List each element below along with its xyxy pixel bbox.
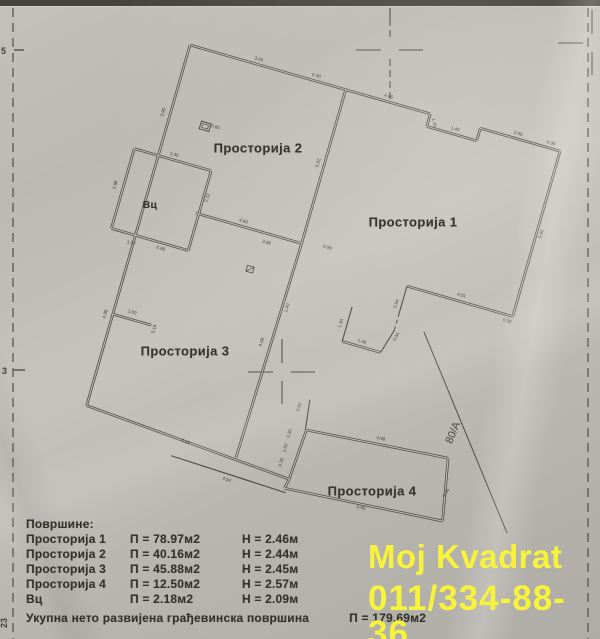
area-legend: Површине: Просторија 1П = 78.97м2Н = 2.4… <box>26 517 426 626</box>
legend-row: Просторија 3П = 45.88м2Н = 2.45м <box>26 562 426 577</box>
watermark: Moj Kvadrat 011/334-88-36 <box>368 540 600 639</box>
dimension-label: 4.65 <box>384 93 394 100</box>
scanned-floor-plan-page: 532380/A3.950.304.651.101.402.950.305.90… <box>0 0 600 639</box>
dimension-label: 0.90 <box>156 245 166 252</box>
legend-col-h: Н = 2.09м <box>242 592 298 607</box>
dimension-label: 0.98 <box>111 179 118 189</box>
dimension-label: 4.60 <box>239 217 249 224</box>
legend-col-h: Н = 2.46м <box>242 532 298 547</box>
legend-col-name: Просторија 1 <box>26 532 130 547</box>
legend-col-p: П = 40.16м2 <box>130 547 242 562</box>
legend-title: Површине: <box>26 517 426 532</box>
dimension-label: 4.08 <box>258 337 266 348</box>
legend-col-h: Н = 2.44м <box>242 547 298 562</box>
frame-edge-label: 23 <box>0 618 9 628</box>
legend-row: Просторија 4П = 12.50м2Н = 2.57м <box>26 577 426 592</box>
dimension-label: 1.46 <box>357 338 367 345</box>
dimension-label: 0.18 <box>150 324 157 334</box>
legend-col-name: Просторија 3 <box>26 562 130 577</box>
dimension-label: 2.92 <box>295 402 303 412</box>
legend-row: ВцП = 2.18м2Н = 2.09м <box>26 592 426 607</box>
legend-col-p: П = 12.50м2 <box>130 577 242 592</box>
legend-col-h: Н = 2.57м <box>242 577 298 592</box>
dimension-label: 2.45 <box>442 487 451 498</box>
legend-col-name: Просторија 4 <box>26 577 130 592</box>
room-label: Вц <box>143 199 158 211</box>
legend-col-p: П = 45.88м2 <box>130 562 242 577</box>
dimension-label: 5.82 <box>314 157 321 167</box>
dimension-label: 1.00 <box>127 308 137 315</box>
legend-row: Просторија 2П = 40.16м2Н = 2.44м <box>26 547 426 562</box>
dimension-label: 0.90 <box>323 244 333 251</box>
dimension-label: 1.40 <box>169 151 179 158</box>
dimension-label: 4.99 <box>101 309 108 319</box>
room-label: Просторија 1 <box>369 215 458 230</box>
dimension-label: 3.90 <box>159 107 166 117</box>
room-label: Просторија 4 <box>328 484 417 499</box>
dimension-label: 3.86 <box>262 239 272 246</box>
legend-row: Просторија 1П = 78.97м2Н = 2.46м <box>26 532 426 547</box>
room-label: Просторија 3 <box>141 344 230 359</box>
dimension-label: 0.30 <box>546 139 556 146</box>
legend-col-p: П = 2.18м2 <box>130 592 242 607</box>
frame-edge-label: 3 <box>2 366 7 376</box>
parcel-number-label: 80/A <box>443 419 463 445</box>
legend-total-label: Укупна нето развијена грађевинска површи… <box>26 611 309 626</box>
dimension-label: 1.40 <box>450 125 460 132</box>
legend-total-row: Укупна нето развијена грађевинска површи… <box>26 611 426 626</box>
dimension-label: 1.10 <box>431 118 438 128</box>
frame-edge-label: 5 <box>1 46 6 56</box>
dimension-label: 5.99 <box>181 438 192 446</box>
dimension-label: 4.96 <box>376 435 386 442</box>
dimension-label: 0.30 <box>502 317 512 324</box>
dimension-label: 0.30 <box>311 72 321 79</box>
legend-col-name: Просторија 2 <box>26 547 130 562</box>
legend-rows: Просторија 1П = 78.97м2Н = 2.46мПростори… <box>26 532 426 607</box>
dimension-label: 0.30 <box>286 428 293 438</box>
room-label: Просторија 2 <box>214 141 303 156</box>
legend-col-h: Н = 2.45м <box>242 562 298 577</box>
legend-col-p: П = 78.97м2 <box>130 532 242 547</box>
dimension-label: 0.94 <box>392 298 400 309</box>
dimension-label: 1.30 <box>337 318 344 328</box>
dimension-label: 3.95 <box>254 55 264 62</box>
dimension-label: 4.01 <box>457 291 467 298</box>
watermark-phone: 011/334-88-36 <box>368 581 600 639</box>
dimension-label: 2.95 <box>513 130 523 137</box>
dimension-label: 0.30 <box>277 457 284 467</box>
dimension-label: 1.50 <box>282 442 289 452</box>
dimension-label: 0.60 <box>210 123 220 130</box>
legend-col-name: Вц <box>26 592 130 607</box>
watermark-company: Moj Kvadrat <box>368 540 600 573</box>
dimension-label: 4.90 <box>356 504 366 511</box>
dimension-label: 4.94 <box>222 476 233 484</box>
